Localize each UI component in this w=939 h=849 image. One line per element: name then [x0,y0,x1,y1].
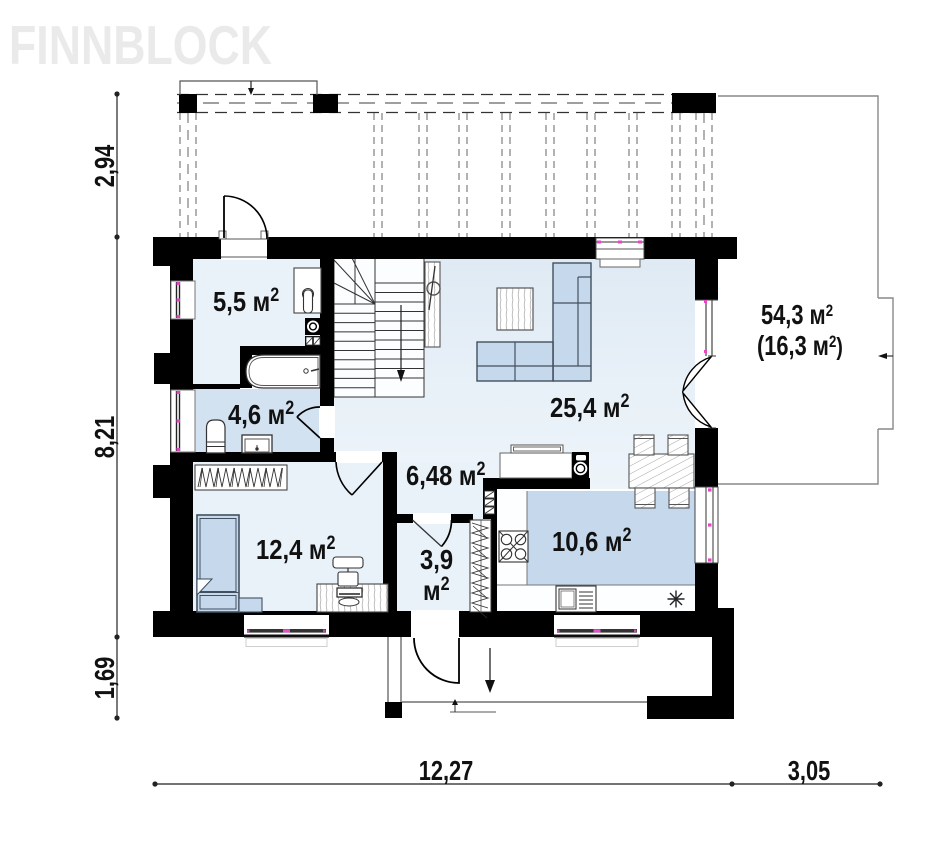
svg-text:3,05: 3,05 [788,755,831,786]
svg-text:2,94: 2,94 [89,145,120,188]
svg-text:12,27: 12,27 [419,755,474,786]
svg-text:4,6 м2: 4,6 м2 [228,397,294,431]
svg-text:3,9: 3,9 [420,543,453,575]
svg-text:54,3 м2: 54,3 м2 [761,299,833,330]
svg-text:8,21: 8,21 [89,416,120,459]
svg-text:FINNBLOCK: FINNBLOCK [9,14,272,76]
svg-text:12,4 м2: 12,4 м2 [256,532,336,566]
svg-text:1,69: 1,69 [89,657,120,700]
svg-text:5,5 м2: 5,5 м2 [213,284,279,318]
svg-text:10,6 м2: 10,6 м2 [552,524,632,558]
svg-text:6,48 м2: 6,48 м2 [406,458,486,492]
svg-text:25,4 м2: 25,4 м2 [550,390,630,424]
